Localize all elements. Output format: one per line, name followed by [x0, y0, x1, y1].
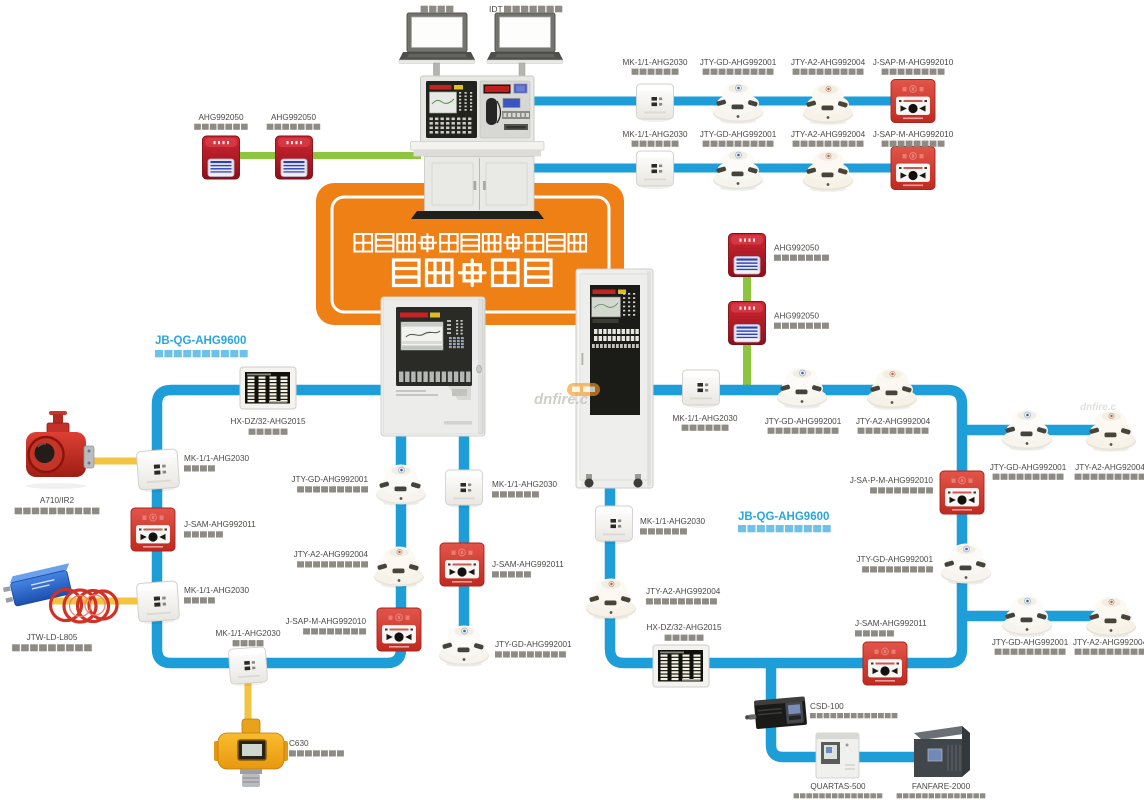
svg-text:AHG992050: AHG992050 — [198, 113, 244, 122]
svg-text:CSD-100: CSD-100 — [810, 702, 844, 711]
svg-text:QUARTAS-500: QUARTAS-500 — [810, 782, 866, 791]
svg-text:FANFARE-2000: FANFARE-2000 — [912, 782, 971, 791]
svg-text:IDT: IDT — [489, 4, 503, 14]
svg-text:MK-1/1-AHG2030: MK-1/1-AHG2030 — [640, 517, 706, 526]
svg-text:JTW-LD-L805: JTW-LD-L805 — [27, 633, 78, 642]
svg-text:JTY-GD-AHG992001: JTY-GD-AHG992001 — [495, 640, 572, 649]
svg-text:JTY-A2-AHG992004: JTY-A2-AHG992004 — [1073, 638, 1144, 647]
svg-text:J-SAP-M-AHG992010: J-SAP-M-AHG992010 — [285, 617, 366, 626]
svg-text:JTY-A2-AHG992004: JTY-A2-AHG992004 — [791, 130, 866, 139]
svg-text:JTY-GD-AHG992001: JTY-GD-AHG992001 — [765, 417, 842, 426]
svg-text:AHG992050: AHG992050 — [774, 312, 820, 321]
svg-text:JTY-GD-AHG992001: JTY-GD-AHG992001 — [990, 463, 1067, 472]
svg-text:JTY-A2-AHG992004: JTY-A2-AHG992004 — [646, 587, 721, 596]
svg-text:MK-1/1-AHG2030: MK-1/1-AHG2030 — [215, 629, 281, 638]
svg-text:JTY-GD-AHG992001: JTY-GD-AHG992001 — [992, 638, 1069, 647]
svg-text:MK-1/1-AHG2030: MK-1/1-AHG2030 — [184, 454, 250, 463]
svg-text:J-SAP-M-AHG992010: J-SAP-M-AHG992010 — [873, 130, 954, 139]
svg-text:JTY-A2-AHG992004: JTY-A2-AHG992004 — [294, 550, 369, 559]
svg-text:MK-1/1-AHG2030: MK-1/1-AHG2030 — [672, 414, 738, 423]
svg-text:J-SAM-AHG992011: J-SAM-AHG992011 — [855, 619, 927, 628]
svg-text:HX-DZ/32-AHG2015: HX-DZ/32-AHG2015 — [230, 417, 306, 426]
svg-text:C630: C630 — [289, 739, 309, 748]
svg-text:JTY-A2-AHG992004: JTY-A2-AHG992004 — [856, 417, 931, 426]
svg-text:MK-1/1-AHG2030: MK-1/1-AHG2030 — [622, 130, 688, 139]
svg-text:J-SA-P-M-AHG992010: J-SA-P-M-AHG992010 — [850, 476, 934, 485]
svg-text:A710/IR2: A710/IR2 — [40, 496, 75, 505]
svg-text:J-SAM-AHG992011: J-SAM-AHG992011 — [184, 520, 256, 529]
svg-text:AHG992050: AHG992050 — [774, 244, 820, 253]
svg-text:JTY-GD-AHG992001: JTY-GD-AHG992001 — [856, 555, 933, 564]
svg-text:JTY-A2-AHG92004: JTY-A2-AHG92004 — [1075, 463, 1144, 472]
svg-text:J-SAP-M-AHG992010: J-SAP-M-AHG992010 — [873, 58, 954, 67]
svg-text:MK-1/1-AHG2030: MK-1/1-AHG2030 — [492, 480, 558, 489]
svg-text:HX-DZ/32-AHG2015: HX-DZ/32-AHG2015 — [646, 623, 722, 632]
svg-text:JTY-GD-AHG992001: JTY-GD-AHG992001 — [291, 475, 368, 484]
svg-text:JB-QG-AHG9600: JB-QG-AHG9600 — [738, 511, 829, 523]
svg-text:MK-1/1-AHG2030: MK-1/1-AHG2030 — [184, 586, 250, 595]
svg-text:JTY-GD-AHG992001: JTY-GD-AHG992001 — [700, 58, 777, 67]
svg-text:AHG992050: AHG992050 — [271, 113, 317, 122]
svg-text:JTY-GD-AHG992001: JTY-GD-AHG992001 — [700, 130, 777, 139]
svg-text:JB-QG-AHG9600: JB-QG-AHG9600 — [155, 335, 246, 347]
svg-text:J-SAM-AHG992011: J-SAM-AHG992011 — [492, 560, 564, 569]
svg-text:MK-1/1-AHG2030: MK-1/1-AHG2030 — [622, 58, 688, 67]
svg-text:dnfire.c: dnfire.c — [1080, 402, 1117, 413]
svg-text:JTY-A2-AHG992004: JTY-A2-AHG992004 — [791, 58, 866, 67]
